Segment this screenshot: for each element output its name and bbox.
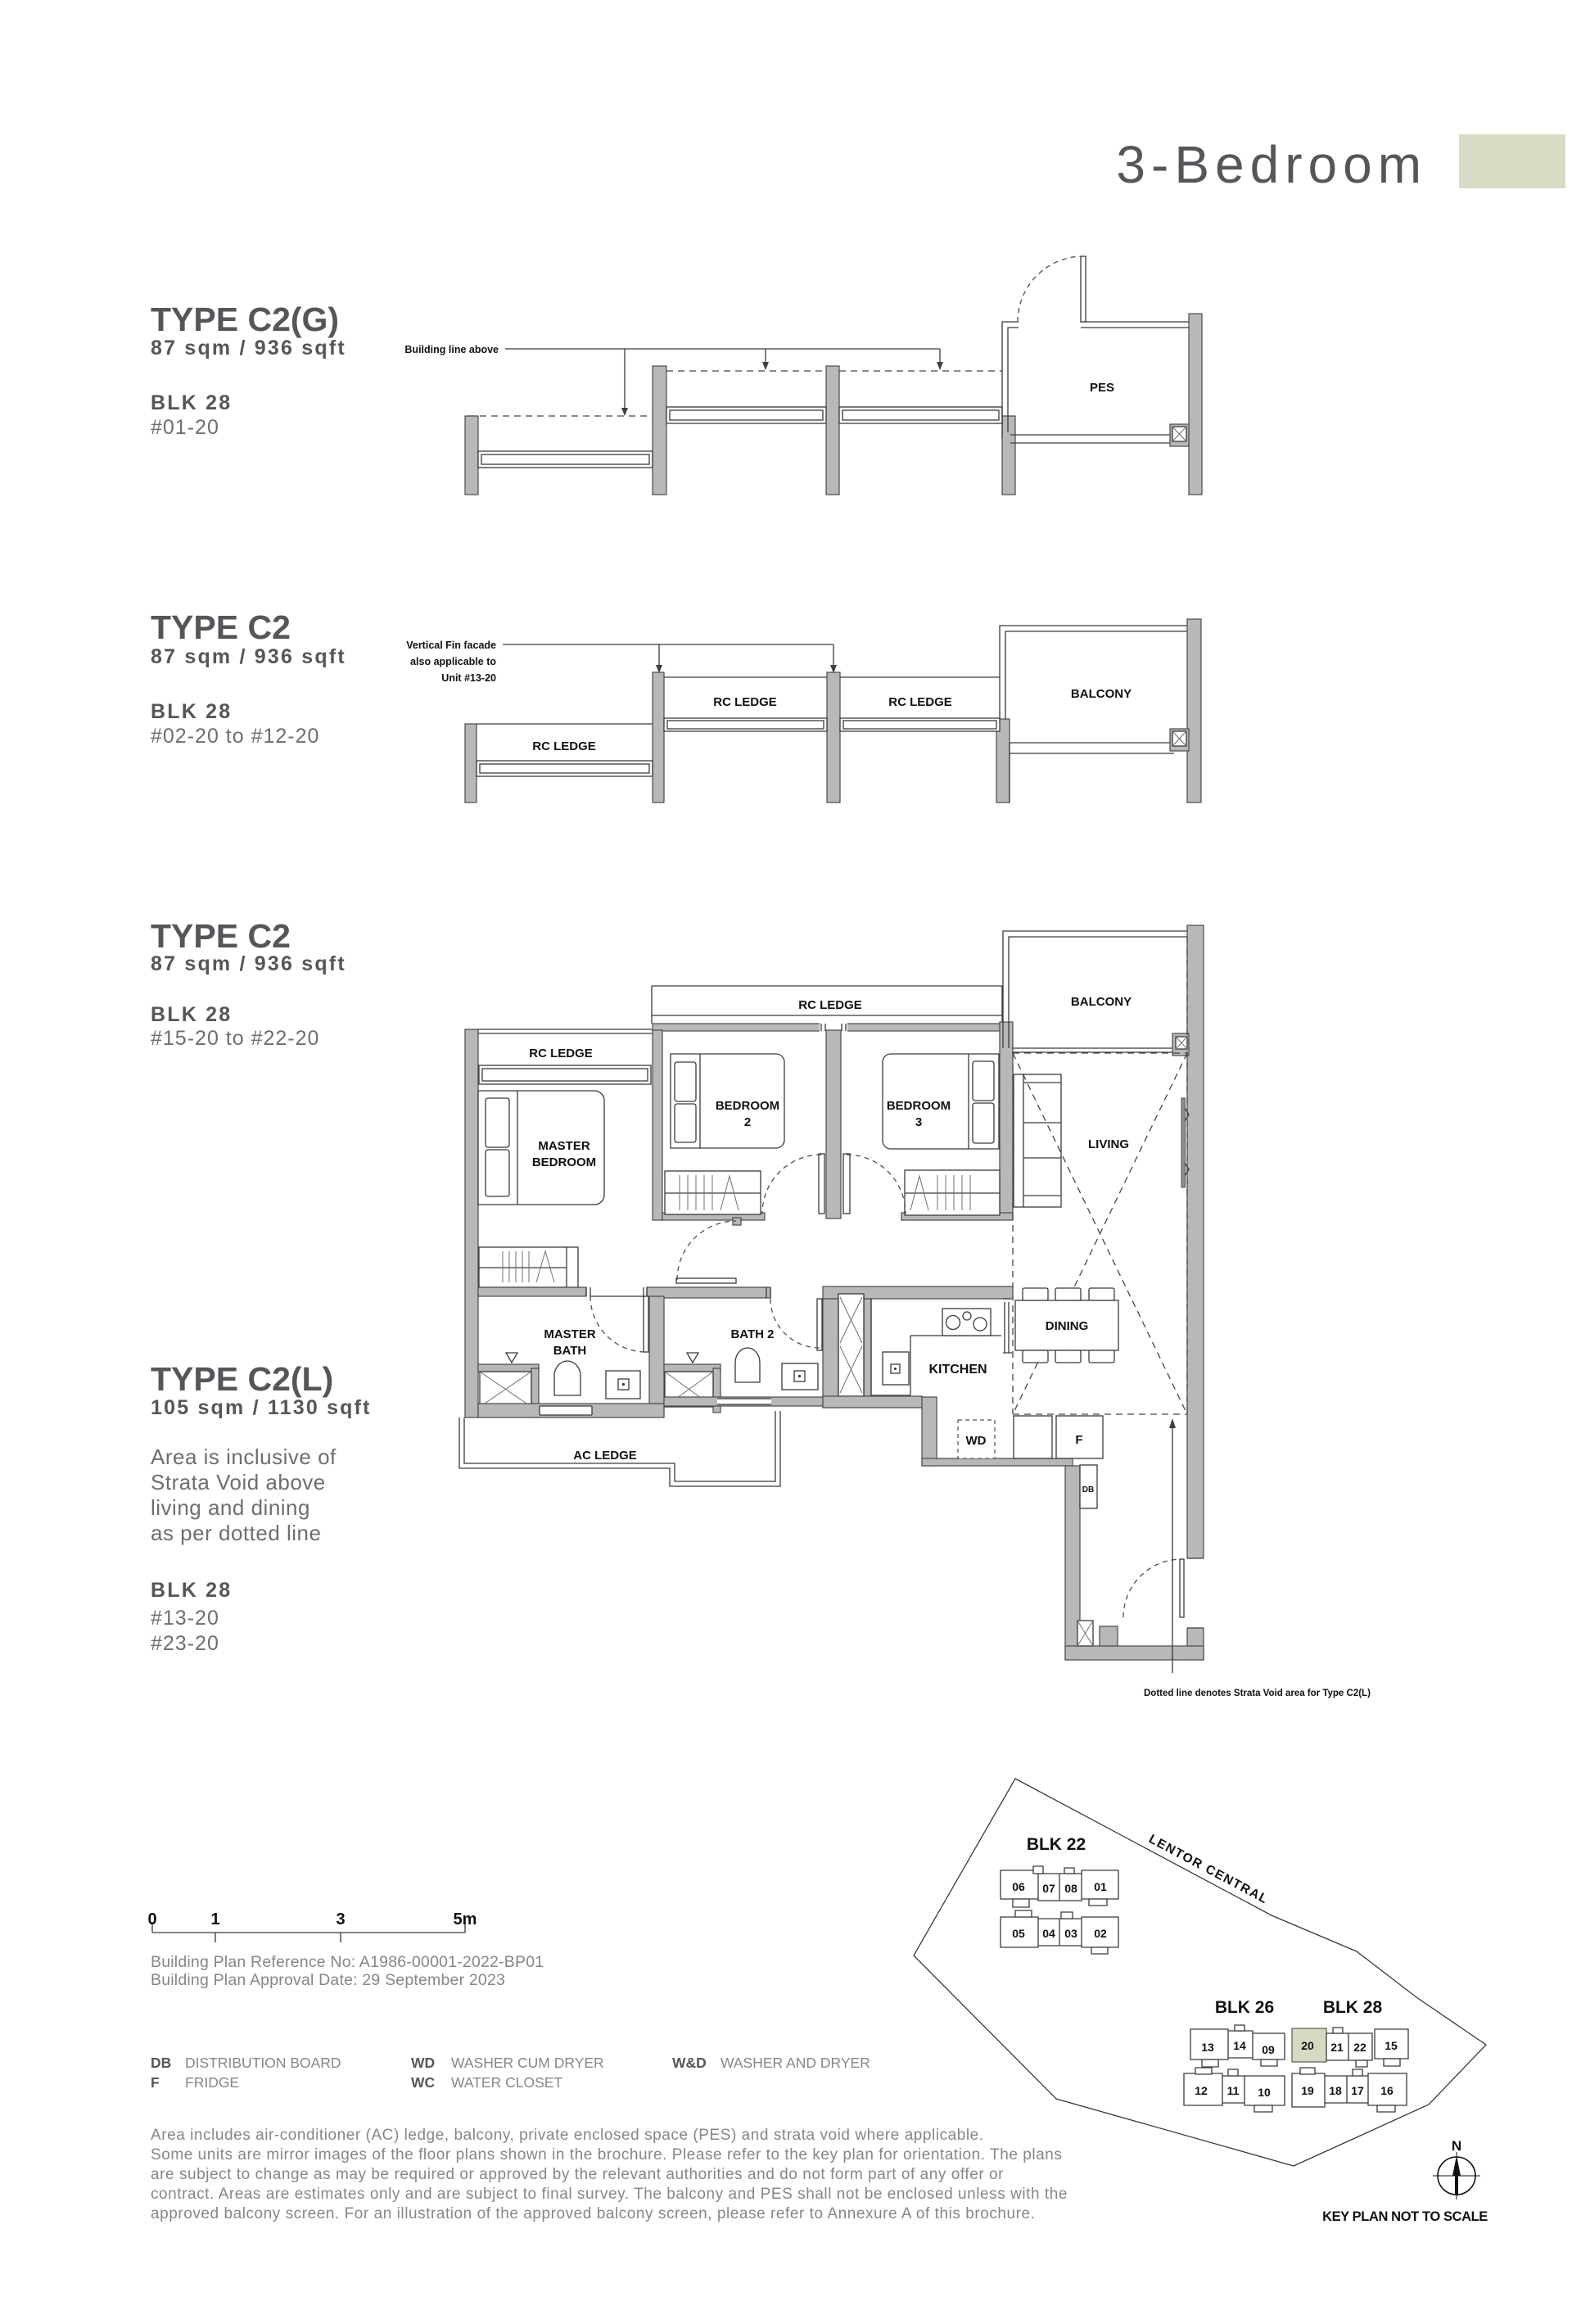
svg-text:LENTOR CENTRAL: LENTOR CENTRAL [1146,1832,1271,1906]
svg-text:13: 13 [1201,2041,1214,2054]
svg-text:05: 05 [1012,1927,1025,1940]
svg-text:Vertical Fin facade: Vertical Fin facade [406,640,496,651]
svg-text:MASTER: MASTER [544,1327,596,1341]
svg-text:BLK 28: BLK 28 [151,700,232,723]
svg-text:02: 02 [1094,1927,1107,1940]
svg-text:#23-20: #23-20 [151,1632,219,1655]
svg-text:BEDROOM: BEDROOM [887,1099,951,1113]
svg-text:TYPE C2(G): TYPE C2(G) [151,301,339,338]
svg-text:04: 04 [1042,1927,1055,1940]
svg-text:01: 01 [1094,1880,1107,1893]
svg-text:WASHER CUM DRYER: WASHER CUM DRYER [451,2055,604,2071]
svg-text:87 sqm / 936 sqft: 87 sqm / 936 sqft [151,337,346,359]
svg-text:as per dotted line: as per dotted line [151,1521,321,1545]
svg-text:18: 18 [1329,2084,1342,2097]
svg-text:20: 20 [1301,2039,1314,2052]
svg-text:08: 08 [1064,1882,1077,1895]
svg-text:07: 07 [1042,1882,1055,1895]
svg-text:F: F [151,2074,160,2091]
svg-text:11: 11 [1227,2084,1240,2097]
svg-text:1: 1 [210,1910,219,1928]
svg-text:06: 06 [1012,1880,1025,1893]
svg-text:10: 10 [1258,2086,1271,2099]
svg-text:5m: 5m [454,1910,477,1928]
svg-text:are subject to change as may b: are subject to change as may be required… [151,2166,1004,2183]
svg-text:Area includes air-conditioner: Area includes air-conditioner (AC) ledge… [151,2127,984,2144]
svg-text:RC LEDGE: RC LEDGE [532,739,596,753]
svg-text:AC LEDGE: AC LEDGE [573,1449,637,1463]
svg-text:contract. Areas are estimates: contract. Areas are estimates only and a… [151,2186,1068,2203]
svg-text:WASHER AND DRYER: WASHER AND DRYER [720,2055,870,2071]
svg-text:WD: WD [966,1434,987,1448]
svg-text:WC: WC [411,2074,436,2091]
svg-text:Building line above: Building line above [404,344,499,355]
svg-text:RC LEDGE: RC LEDGE [888,695,952,709]
svg-text:Building Plan Reference No: A1: Building Plan Reference No: A1986-00001-… [151,1953,544,1971]
svg-text:BEDROOM: BEDROOM [532,1155,596,1169]
svg-text:#15-20 to #22-20: #15-20 to #22-20 [151,1027,319,1050]
svg-text:Some units are mirror images o: Some units are mirror images of the floo… [151,2146,1062,2163]
svg-text:BLK 28: BLK 28 [151,1003,232,1026]
svg-text:TYPE C2: TYPE C2 [151,608,291,646]
svg-text:21: 21 [1330,2041,1344,2054]
svg-text:Strata Void above: Strata Void above [151,1470,326,1494]
svg-text:#02-20 to #12-20: #02-20 to #12-20 [151,725,319,748]
svg-text:KEY PLAN NOT TO SCALE: KEY PLAN NOT TO SCALE [1322,2209,1488,2224]
svg-text:also applicable to: also applicable to [410,656,496,667]
svg-text:FRIDGE: FRIDGE [185,2074,239,2091]
svg-text:#13-20: #13-20 [151,1607,219,1630]
svg-text:#01-20: #01-20 [151,416,219,439]
svg-text:RC LEDGE: RC LEDGE [713,695,777,709]
svg-text:3: 3 [915,1115,922,1129]
svg-text:03: 03 [1064,1927,1077,1940]
svg-text:Area is inclusive of: Area is inclusive of [151,1445,337,1469]
svg-text:87 sqm / 936 sqft: 87 sqm / 936 sqft [151,645,346,668]
svg-text:BLK 28: BLK 28 [1323,1998,1383,2017]
svg-text:3: 3 [336,1910,345,1928]
svg-text:Dotted line denotes Strata Voi: Dotted line denotes Strata Void area for… [1144,1689,1371,1698]
svg-text:living and dining: living and dining [151,1495,310,1520]
svg-text:14: 14 [1233,2039,1246,2052]
svg-text:Building Plan Approval Date: 2: Building Plan Approval Date: 29 Septembe… [151,1971,505,1989]
svg-text:RC LEDGE: RC LEDGE [798,998,862,1012]
svg-text:DB: DB [151,2055,171,2071]
svg-text:PES: PES [1090,381,1114,395]
svg-text:MASTER: MASTER [538,1139,590,1153]
svg-text:0: 0 [147,1910,156,1928]
svg-text:approved balcony screen. For a: approved balcony screen. For an illustra… [151,2205,1036,2222]
svg-text:2: 2 [744,1115,751,1129]
svg-text:W&D: W&D [672,2055,707,2071]
svg-text:BLK 26: BLK 26 [1215,1998,1274,2017]
svg-text:LIVING: LIVING [1088,1137,1129,1151]
svg-text:16: 16 [1380,2084,1394,2097]
svg-text:F: F [1075,1433,1082,1447]
svg-text:BLK 28: BLK 28 [151,391,232,414]
svg-text:DINING: DINING [1046,1319,1089,1333]
svg-text:TYPE C2: TYPE C2 [151,917,291,955]
svg-text:WD: WD [411,2055,435,2071]
svg-text:N: N [1452,2138,1461,2154]
svg-text:DB: DB [1082,1485,1094,1494]
svg-text:BATH 2: BATH 2 [730,1327,774,1341]
svg-text:12: 12 [1195,2084,1208,2097]
svg-text:TYPE C2(L): TYPE C2(L) [151,1360,333,1398]
svg-text:BEDROOM: BEDROOM [716,1099,779,1113]
svg-text:BATH: BATH [553,1344,587,1358]
svg-text:Unit #13-20: Unit #13-20 [441,672,496,684]
svg-text:BLK 22: BLK 22 [1027,1835,1086,1854]
svg-text:19: 19 [1301,2084,1314,2097]
svg-text:RC LEDGE: RC LEDGE [529,1047,593,1060]
svg-text:KITCHEN: KITCHEN [928,1363,987,1377]
svg-text:17: 17 [1351,2084,1364,2097]
svg-text:WATER CLOSET: WATER CLOSET [451,2074,562,2091]
svg-text:22: 22 [1353,2041,1366,2054]
svg-text:BALCONY: BALCONY [1071,995,1132,1009]
svg-text:BLK 28: BLK 28 [151,1579,232,1602]
svg-text:DISTRIBUTION BOARD: DISTRIBUTION BOARD [185,2055,341,2071]
svg-text:3-Bedroom: 3-Bedroom [1116,135,1427,194]
svg-text:BALCONY: BALCONY [1071,687,1132,701]
svg-text:105 sqm / 1130 sqft: 105 sqm / 1130 sqft [151,1396,372,1419]
svg-text:87 sqm / 936 sqft: 87 sqm / 936 sqft [151,952,346,975]
svg-text:09: 09 [1262,2043,1275,2056]
svg-text:15: 15 [1385,2039,1398,2052]
